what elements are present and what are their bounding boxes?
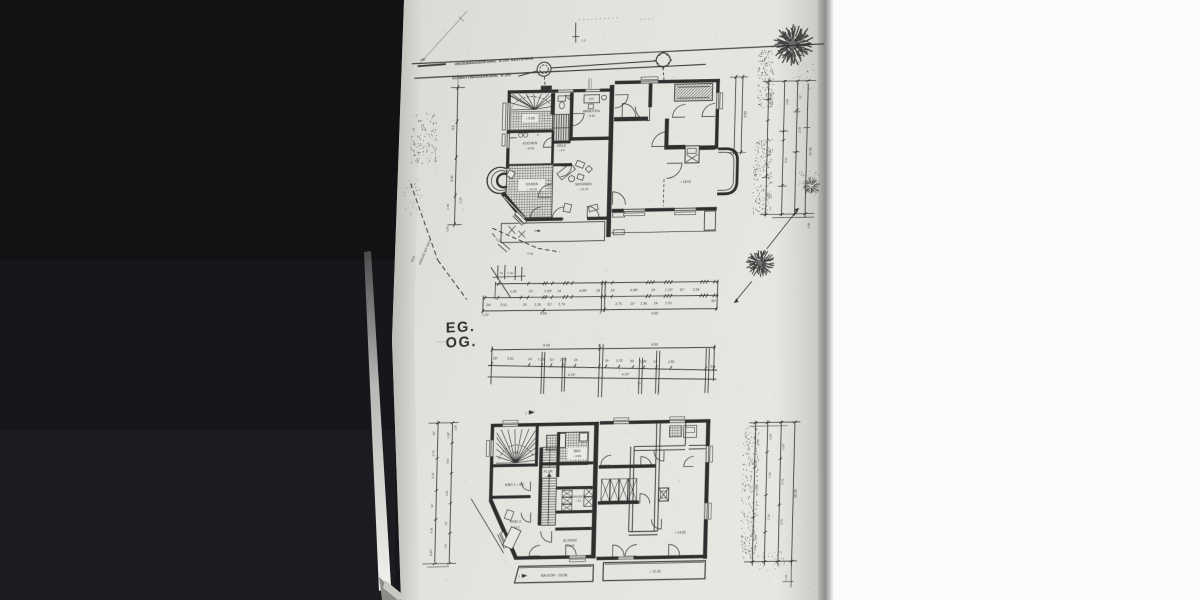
svg-text:○ 18.02: ○ 18.02 — [680, 180, 691, 184]
svg-text:24: 24 — [611, 288, 615, 292]
svg-text:3.35: 3.35 — [768, 434, 772, 440]
svg-text:+26: +26 — [420, 57, 426, 61]
svg-text:11⁵: 11⁵ — [444, 521, 448, 525]
svg-text:KÜCHEN: KÜCHEN — [523, 141, 538, 145]
svg-text:2.86⁵: 2.86⁵ — [429, 548, 433, 556]
svg-text:8.50: 8.50 — [540, 311, 547, 315]
svg-text:BALKON ○ 18.56: BALKON ○ 18.56 — [541, 573, 567, 578]
svg-text:1.26: 1.26 — [767, 514, 771, 520]
svg-text:ANKLEIDE: ANKLEIDE — [572, 495, 586, 499]
svg-text:○ 9.88: ○ 9.88 — [526, 116, 535, 120]
svg-text:2.55: 2.55 — [668, 360, 675, 364]
svg-text:○ 8.09: ○ 8.09 — [526, 146, 535, 150]
svg-text:F.P.: F.P. — [589, 97, 594, 101]
svg-text:3.51: 3.51 — [500, 303, 507, 307]
svg-text:2.31: 2.31 — [431, 472, 435, 478]
svg-text:○ 5.1: ○ 5.1 — [575, 498, 582, 502]
svg-text:2.85: 2.85 — [755, 484, 759, 490]
svg-text:34⁵: 34⁵ — [710, 364, 716, 368]
svg-text:I: I — [519, 575, 520, 579]
svg-text:○ 14.63: ○ 14.63 — [674, 531, 685, 535]
svg-text:3.00: 3.00 — [450, 175, 454, 182]
svg-text:3.28: 3.28 — [785, 99, 789, 105]
svg-text:ELTERN: ELTERN — [563, 539, 577, 543]
svg-text:2.76: 2.76 — [560, 358, 567, 362]
svg-text:2.74: 2.74 — [558, 302, 565, 306]
svg-text:FLUR: FLUR — [544, 470, 553, 474]
svg-text:1.91: 1.91 — [445, 225, 449, 231]
svg-text:II: II — [537, 133, 539, 137]
svg-text:1.38: 1.38 — [453, 425, 457, 431]
svg-text:11⁵: 11⁵ — [630, 302, 636, 306]
svg-text:2.76: 2.76 — [431, 450, 435, 456]
svg-text:1.26: 1.26 — [534, 303, 541, 307]
svg-text:2.26: 2.26 — [798, 127, 802, 133]
svg-text:KIND 2: KIND 2 — [510, 520, 521, 524]
svg-text:4.38⁵: 4.38⁵ — [630, 288, 639, 292]
svg-text:1.36: 1.36 — [640, 301, 647, 305]
svg-text:DIELE: DIELE — [557, 144, 566, 148]
svg-text:24: 24 — [528, 357, 532, 361]
svg-text:24: 24 — [651, 288, 655, 292]
svg-text:ESSEN: ESSEN — [526, 182, 539, 186]
svg-text:24: 24 — [523, 303, 527, 307]
svg-text:2.76: 2.76 — [780, 478, 784, 484]
svg-text:○ 8.86: ○ 8.86 — [573, 454, 582, 458]
svg-text:1.76: 1.76 — [446, 203, 450, 209]
svg-text:4.10: 4.10 — [527, 251, 534, 256]
svg-text:2.75: 2.75 — [616, 359, 623, 363]
svg-text:5.50: 5.50 — [743, 111, 747, 118]
svg-text:4.26: 4.26 — [429, 527, 433, 533]
svg-text:3.51: 3.51 — [507, 357, 514, 361]
svg-text:2.75: 2.75 — [615, 302, 622, 306]
svg-text:○ 9.88: ○ 9.88 — [510, 451, 519, 455]
svg-text:24⁵: 24⁵ — [486, 303, 492, 307]
svg-text:1.26⁵: 1.26⁵ — [781, 443, 785, 450]
svg-text:8.50: 8.50 — [651, 311, 658, 315]
svg-text:1.33: 1.33 — [784, 574, 788, 580]
svg-text:○ 4.5: ○ 4.5 — [558, 148, 565, 152]
svg-text:2.51: 2.51 — [665, 301, 672, 305]
svg-text:1.26: 1.26 — [538, 357, 545, 361]
svg-text:11⁵: 11⁵ — [529, 289, 535, 293]
svg-text:BAD: BAD — [573, 449, 581, 453]
svg-text:11⁵: 11⁵ — [679, 288, 685, 292]
svg-text:50: 50 — [630, 359, 634, 363]
svg-text:4.13⁵: 4.13⁵ — [568, 373, 576, 377]
svg-text:3.51: 3.51 — [445, 490, 449, 496]
svg-text:24: 24 — [574, 358, 578, 362]
svg-text:○ 10.33: ○ 10.33 — [649, 570, 660, 574]
svg-text:1.20: 1.20 — [507, 271, 513, 275]
svg-text:2.26: 2.26 — [510, 289, 517, 293]
svg-text:1.3: 1.3 — [581, 38, 586, 42]
svg-text:2.85: 2.85 — [756, 439, 760, 445]
svg-text:2×: 2× — [637, 381, 641, 385]
svg-text:WOHNEN: WOHNEN — [575, 182, 592, 186]
svg-text:8.50: 8.50 — [543, 343, 550, 347]
svg-text:4.50: 4.50 — [651, 342, 658, 346]
svg-text:2.51: 2.51 — [784, 157, 788, 163]
svg-text:4.38⁵: 4.38⁵ — [579, 289, 588, 293]
svg-text:36⁵: 36⁵ — [711, 299, 717, 303]
svg-text:1.20: 1.20 — [482, 313, 489, 317]
svg-text:10.50: 10.50 — [808, 147, 812, 156]
svg-text:24: 24 — [557, 289, 561, 293]
svg-text:○ 16.19: ○ 16.19 — [527, 187, 538, 191]
svg-text:24: 24 — [605, 359, 609, 363]
svg-text:1.51: 1.51 — [768, 472, 772, 478]
svg-text:11⁵: 11⁵ — [549, 357, 555, 361]
svg-text:70: 70 — [500, 271, 504, 275]
svg-text:11⁵: 11⁵ — [547, 302, 553, 306]
svg-text:2.01: 2.01 — [779, 518, 783, 524]
svg-text:24: 24 — [653, 360, 657, 364]
svg-text:24: 24 — [596, 289, 600, 293]
svg-text:OG.: OG. — [446, 334, 478, 352]
svg-text:1.12⁵: 1.12⁵ — [665, 288, 674, 292]
svg-text:○ 25.75: ○ 25.75 — [578, 187, 589, 191]
svg-text:28⁵: 28⁵ — [493, 356, 499, 360]
svg-text:10.50: 10.50 — [793, 489, 797, 498]
svg-text:×: × — [806, 70, 808, 74]
svg-text:1.10⁵: 1.10⁵ — [544, 289, 553, 293]
svg-text:1.28: 1.28 — [640, 359, 647, 363]
svg-text:4.13⁵: 4.13⁵ — [622, 372, 630, 376]
svg-text:24: 24 — [654, 301, 658, 305]
svg-text:2.8: 2.8 — [444, 544, 448, 548]
svg-text:I: I — [526, 412, 527, 416]
svg-text:2.76: 2.76 — [459, 197, 463, 203]
svg-text:3.51: 3.51 — [446, 458, 450, 464]
svg-text:2.26: 2.26 — [693, 288, 700, 292]
svg-text:1.55: 1.55 — [807, 222, 811, 228]
svg-text:1.38⁵: 1.38⁵ — [446, 432, 450, 439]
svg-text:2.86⁵: 2.86⁵ — [754, 533, 758, 541]
svg-text:○ 8.81: ○ 8.81 — [587, 114, 596, 118]
svg-text:5.9: 5.9 — [451, 125, 455, 130]
